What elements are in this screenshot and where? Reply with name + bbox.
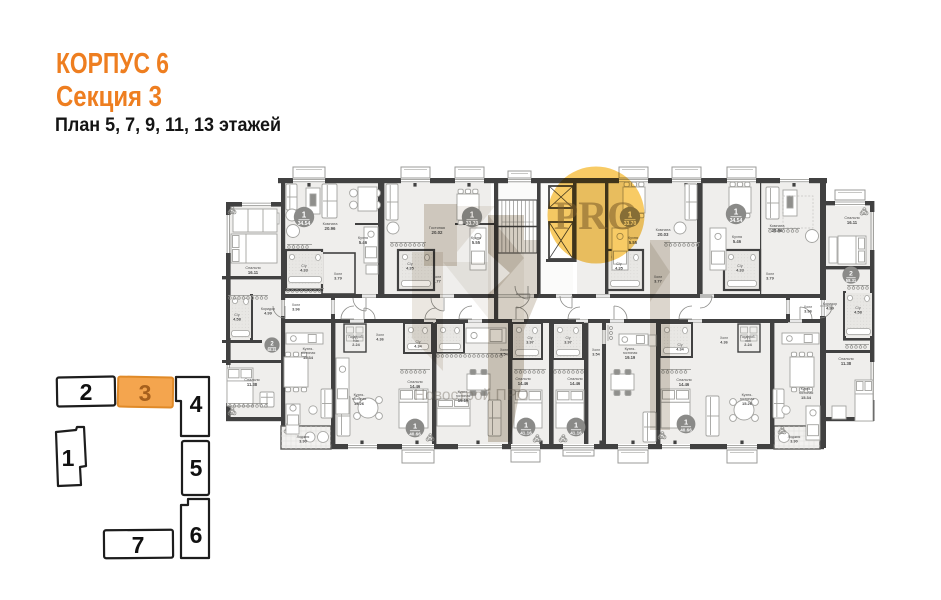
svg-text:4: 4 (190, 391, 203, 417)
svg-text:34.54: 34.54 (298, 221, 311, 227)
svg-text:19.19: 19.19 (625, 355, 636, 360)
svg-text:20.96: 20.96 (772, 228, 784, 233)
svg-text:План 5, 7, 9, 11, 13 этажей: План 5, 7, 9, 11, 13 этажей (55, 114, 281, 136)
svg-text:4.99: 4.99 (826, 306, 835, 311)
svg-text:14.46: 14.46 (570, 381, 581, 386)
svg-text:4.34: 4.34 (676, 347, 684, 351)
svg-text:1: 1 (574, 421, 578, 430)
svg-text:2.24: 2.24 (744, 343, 752, 347)
svg-text:15.34: 15.34 (303, 355, 314, 360)
svg-text:Секция 3: Секция 3 (56, 81, 162, 113)
svg-text:20.03: 20.03 (658, 232, 670, 237)
svg-text:4.33: 4.33 (736, 268, 745, 273)
svg-text:1: 1 (413, 422, 417, 431)
svg-text:3.90: 3.90 (790, 440, 797, 444)
svg-text:4.58: 4.58 (854, 310, 863, 315)
svg-text:14.46: 14.46 (679, 382, 690, 387)
svg-text:5: 5 (190, 455, 203, 481)
svg-text:Холл: Холл (720, 336, 728, 340)
svg-text:16.11: 16.11 (248, 270, 259, 275)
svg-text:1: 1 (302, 211, 307, 220)
svg-text:15.26: 15.26 (354, 401, 365, 406)
svg-text:Лоджия: Лоджия (788, 435, 801, 439)
svg-text:4.58: 4.58 (233, 317, 242, 322)
svg-text:3.96: 3.96 (804, 309, 813, 314)
svg-text:3.90: 3.90 (299, 440, 306, 444)
svg-text:15.34: 15.34 (801, 395, 812, 400)
svg-text:3.96: 3.96 (292, 307, 301, 312)
svg-text:2.24: 2.24 (352, 343, 360, 347)
svg-text:4.35: 4.35 (615, 266, 624, 271)
svg-text:20.96: 20.96 (325, 226, 337, 231)
svg-text:1: 1 (524, 421, 528, 430)
svg-text:1: 1 (684, 418, 688, 427)
svg-text:Холл: Холл (592, 348, 600, 352)
svg-text:58.31: 58.31 (267, 348, 276, 352)
svg-text:41.16: 41.16 (570, 431, 582, 436)
svg-text:2: 2 (80, 379, 93, 405)
svg-text:Холл: Холл (376, 333, 384, 337)
svg-text:3.97: 3.97 (564, 340, 571, 344)
svg-text:11.38: 11.38 (841, 361, 852, 366)
svg-text:1: 1 (734, 208, 739, 217)
svg-text:16.11: 16.11 (847, 220, 858, 225)
svg-text:КОРПУС 6: КОРПУС 6 (56, 48, 169, 80)
svg-text:4.99: 4.99 (264, 311, 273, 316)
svg-text:3.97: 3.97 (526, 340, 533, 344)
svg-text:С/у: С/у (677, 343, 682, 347)
svg-text:2: 2 (849, 271, 853, 278)
svg-text:3.54: 3.54 (592, 352, 600, 356)
svg-text:4.36: 4.36 (376, 337, 383, 341)
svg-text:3.79: 3.79 (766, 276, 775, 281)
svg-text:5.46: 5.46 (733, 239, 742, 244)
svg-text:5.46: 5.46 (359, 240, 368, 245)
svg-text:11.38: 11.38 (247, 382, 258, 387)
svg-text:1: 1 (62, 445, 75, 471)
svg-text:6: 6 (190, 522, 203, 548)
svg-text:5.55: 5.55 (472, 240, 481, 245)
svg-text:Лоджия: Лоджия (297, 435, 310, 439)
svg-text:58.31: 58.31 (846, 278, 857, 283)
svg-text:15.26: 15.26 (742, 401, 753, 406)
svg-text:С/у: С/у (565, 336, 570, 340)
svg-text:41.16: 41.16 (520, 431, 532, 436)
svg-text:40.66: 40.66 (680, 428, 692, 433)
svg-text:3.79: 3.79 (334, 276, 343, 281)
svg-text:3: 3 (139, 380, 152, 406)
svg-text:С/у: С/у (527, 336, 532, 340)
svg-text:4.36: 4.36 (720, 340, 727, 344)
svg-text:7: 7 (132, 532, 145, 558)
svg-text:4.33: 4.33 (300, 268, 309, 273)
svg-text:40.66: 40.66 (409, 432, 421, 437)
svg-text:34.54: 34.54 (730, 218, 743, 224)
